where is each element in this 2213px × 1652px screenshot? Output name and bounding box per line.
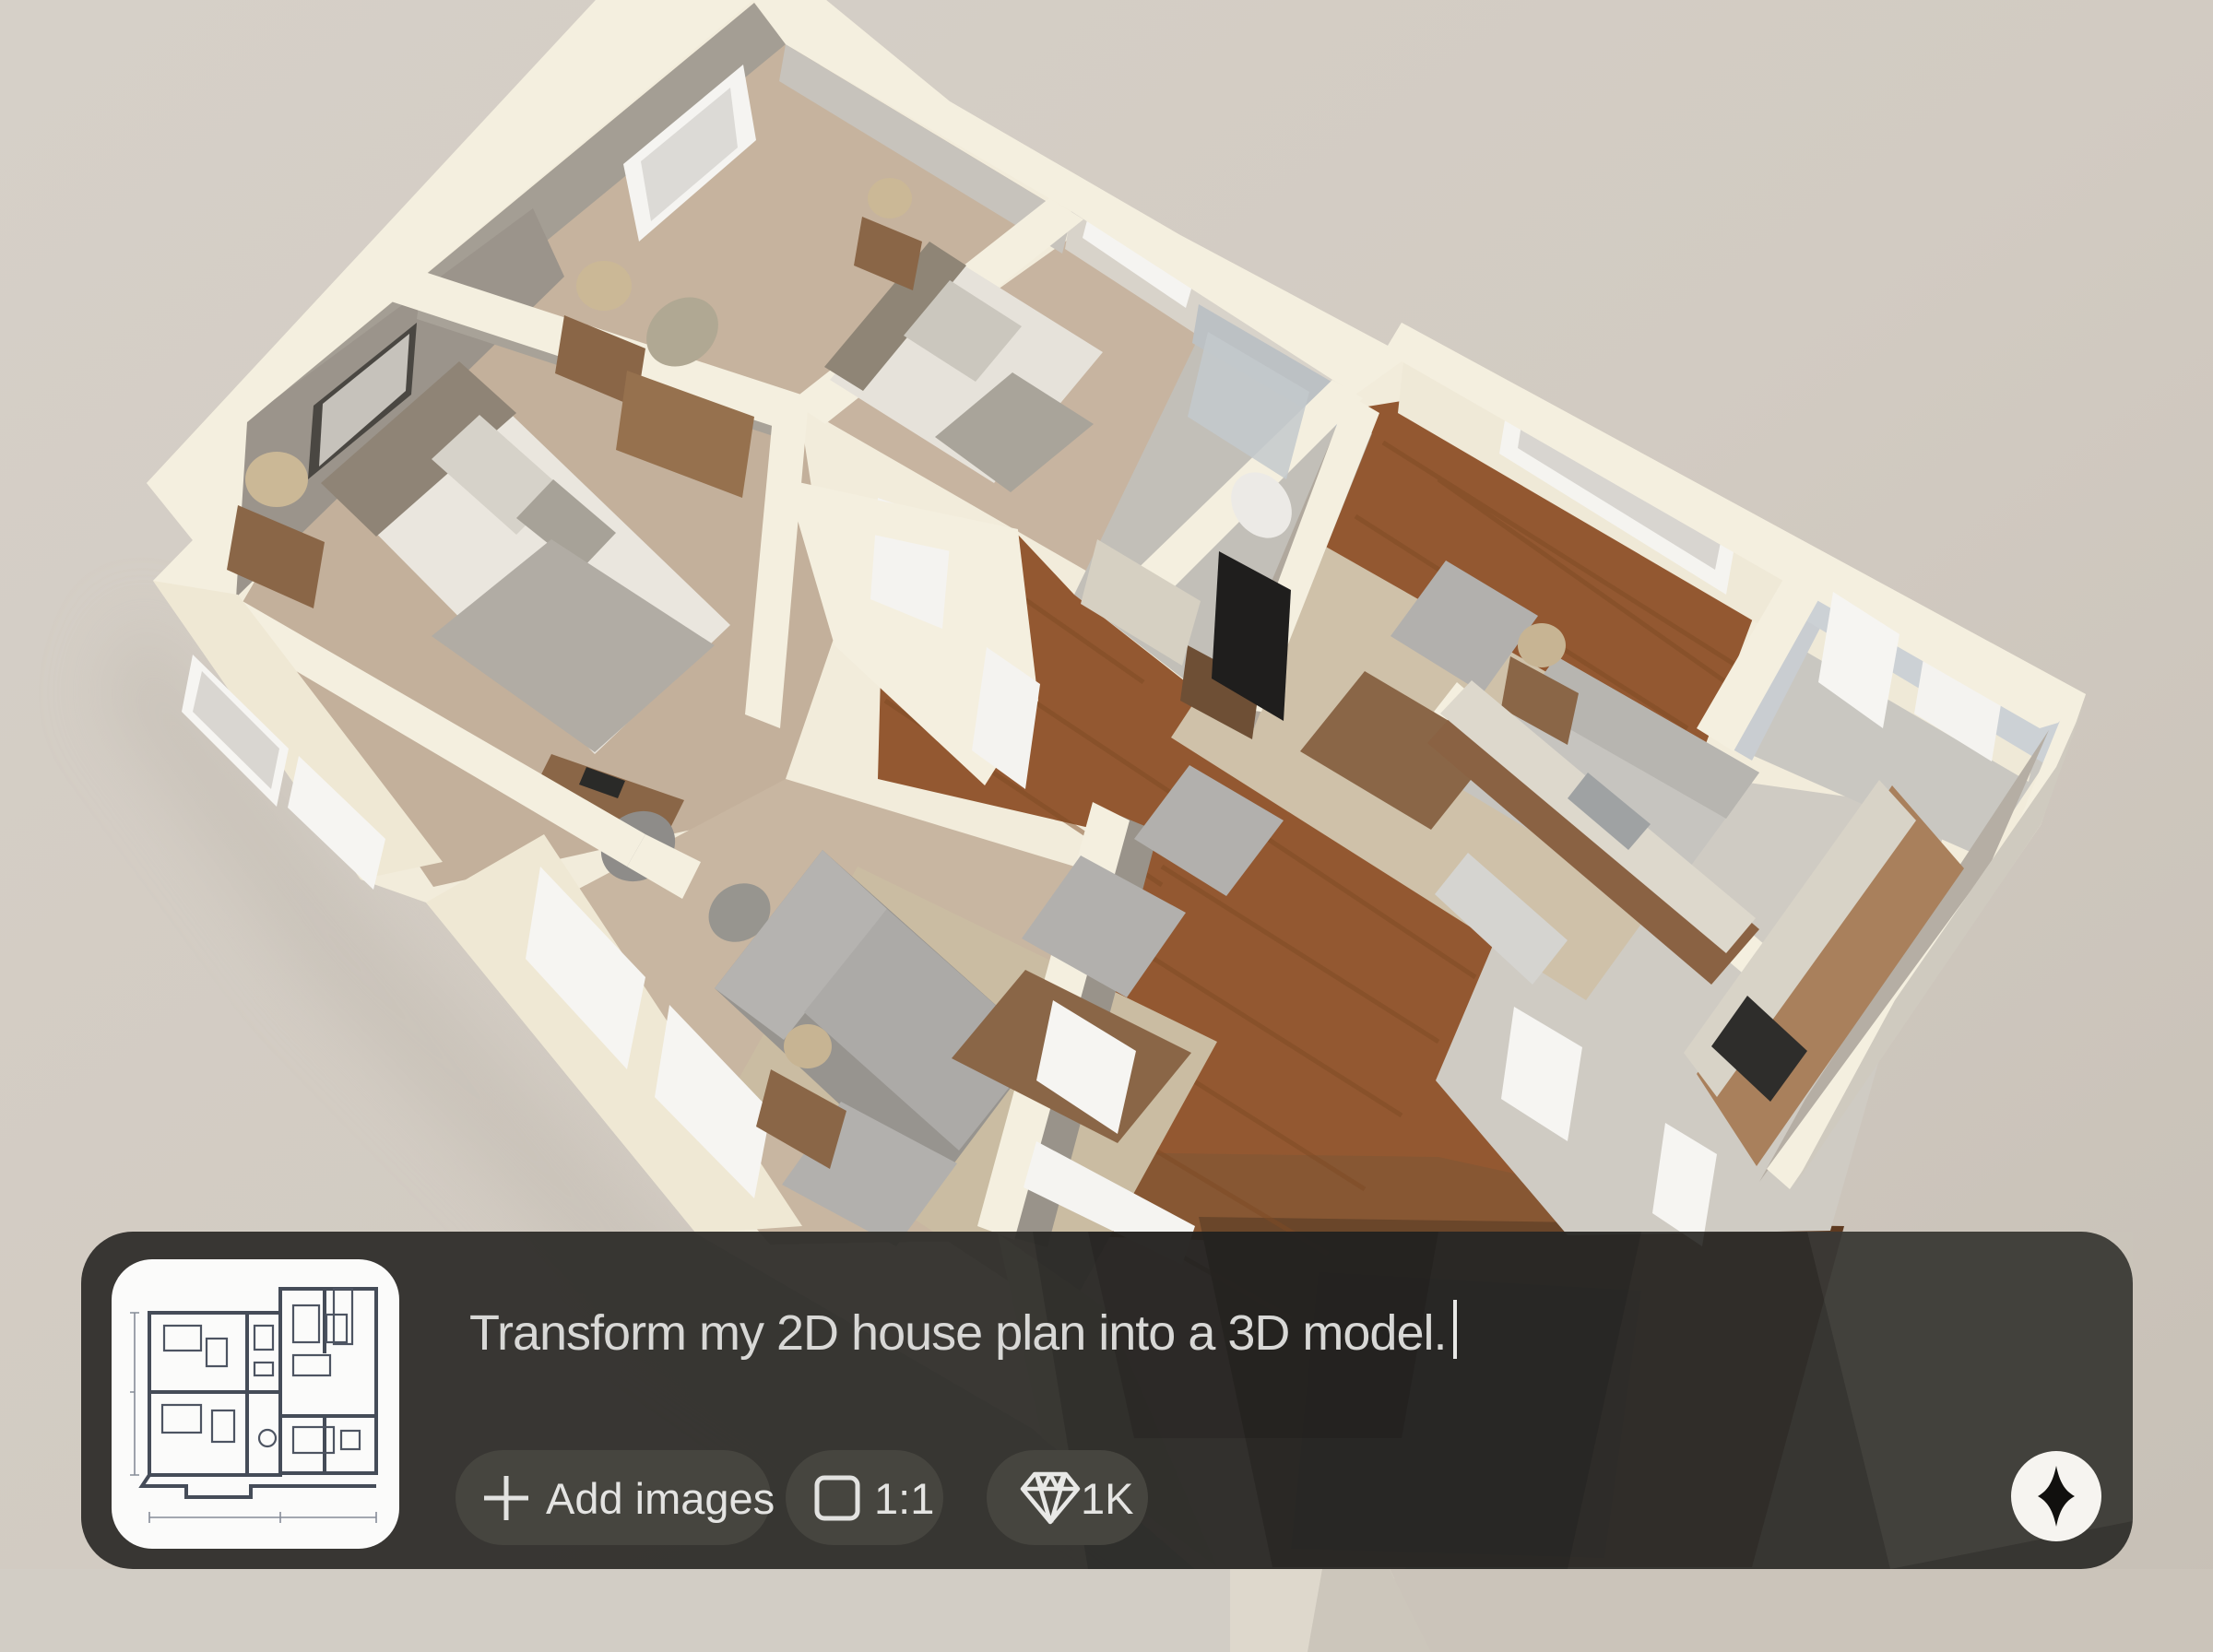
svg-text:1:1: 1:1 [874, 1474, 934, 1523]
svg-text:1K: 1K [1081, 1474, 1134, 1523]
svg-text:Add images: Add images [546, 1474, 775, 1523]
svg-text:Transform my 2D house plan int: Transform my 2D house plan into a 3D mod… [469, 1305, 1447, 1361]
